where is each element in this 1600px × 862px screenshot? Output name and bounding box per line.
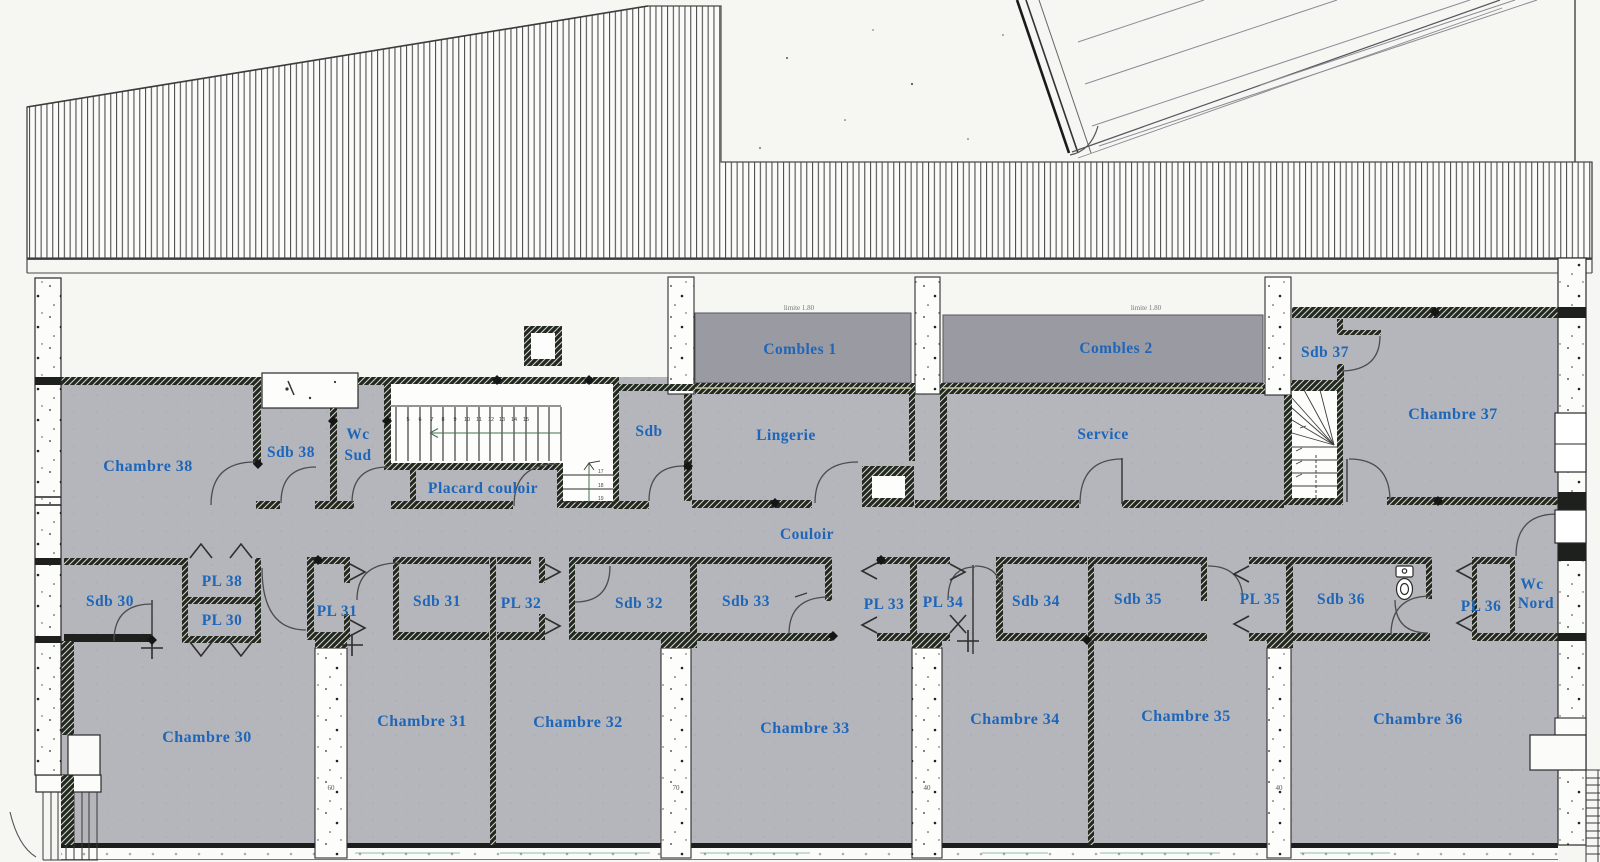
svg-text:7: 7 — [430, 417, 433, 423]
svg-text:Combles 1: Combles 1 — [763, 341, 836, 358]
svg-text:Sdb 34: Sdb 34 — [1012, 593, 1060, 610]
svg-text:Chambre 35: Chambre 35 — [1141, 708, 1231, 725]
svg-text:PL 32: PL 32 — [501, 595, 542, 612]
svg-text:Placard couloir: Placard couloir — [428, 480, 538, 497]
svg-text:Sdb 37: Sdb 37 — [1301, 344, 1349, 361]
svg-text:40: 40 — [1276, 784, 1284, 792]
svg-text:12: 12 — [488, 417, 494, 423]
svg-text:Wc: Wc — [346, 426, 369, 443]
svg-text:Sud: Sud — [344, 447, 371, 464]
svg-text:5: 5 — [406, 417, 409, 423]
svg-text:Wc: Wc — [1520, 576, 1543, 593]
svg-text:Couloir: Couloir — [780, 526, 834, 543]
svg-text:Sdb 33: Sdb 33 — [722, 593, 770, 610]
svg-text:Sdb 30: Sdb 30 — [86, 593, 134, 610]
svg-text:9: 9 — [453, 417, 456, 423]
svg-text:Sdb 35: Sdb 35 — [1114, 591, 1162, 608]
svg-text:Sdb 32: Sdb 32 — [615, 595, 663, 612]
svg-text:Chambre 38: Chambre 38 — [103, 458, 193, 475]
svg-text:Sdb 36: Sdb 36 — [1317, 591, 1365, 608]
svg-text:Chambre 33: Chambre 33 — [760, 720, 850, 737]
svg-text:60: 60 — [328, 784, 336, 792]
svg-text:Sdb 31: Sdb 31 — [413, 593, 461, 610]
svg-text:limite 1.80: limite 1.80 — [1131, 304, 1162, 312]
svg-text:13: 13 — [499, 417, 505, 423]
svg-text:11: 11 — [476, 417, 482, 423]
svg-text:limite 1.80: limite 1.80 — [784, 304, 815, 312]
svg-text:Chambre 37: Chambre 37 — [1408, 406, 1498, 423]
svg-text:18: 18 — [598, 483, 604, 489]
svg-text:14: 14 — [511, 417, 517, 423]
svg-text:40: 40 — [924, 784, 932, 792]
svg-text:PL 36: PL 36 — [1461, 598, 1502, 615]
svg-text:PL 34: PL 34 — [923, 594, 964, 611]
svg-text:Lingerie: Lingerie — [756, 427, 816, 444]
svg-text:19: 19 — [598, 496, 604, 502]
svg-text:Combles 2: Combles 2 — [1079, 340, 1152, 357]
svg-text:10: 10 — [464, 417, 470, 423]
svg-text:Chambre 31: Chambre 31 — [377, 713, 467, 730]
svg-text:PL 38: PL 38 — [202, 573, 243, 590]
svg-text:Chambre 36: Chambre 36 — [1373, 711, 1463, 728]
svg-text:PL 35: PL 35 — [1240, 591, 1281, 608]
svg-text:Chambre 32: Chambre 32 — [533, 714, 623, 731]
svg-text:PL 30: PL 30 — [202, 612, 243, 629]
svg-text:70: 70 — [673, 784, 681, 792]
svg-text:Chambre 34: Chambre 34 — [970, 711, 1060, 728]
svg-text:PL 33: PL 33 — [864, 596, 905, 613]
svg-text:Service: Service — [1077, 426, 1128, 443]
svg-text:15: 15 — [523, 417, 529, 423]
svg-text:Sdb: Sdb — [635, 423, 662, 440]
svg-text:Nord: Nord — [1518, 595, 1554, 612]
svg-text:Sdb 38: Sdb 38 — [267, 444, 315, 461]
svg-text:PL 31: PL 31 — [317, 603, 358, 620]
svg-text:17: 17 — [598, 469, 604, 475]
svg-text:6: 6 — [418, 417, 421, 423]
svg-text:8: 8 — [441, 417, 444, 423]
svg-text:Chambre 30: Chambre 30 — [162, 729, 252, 746]
